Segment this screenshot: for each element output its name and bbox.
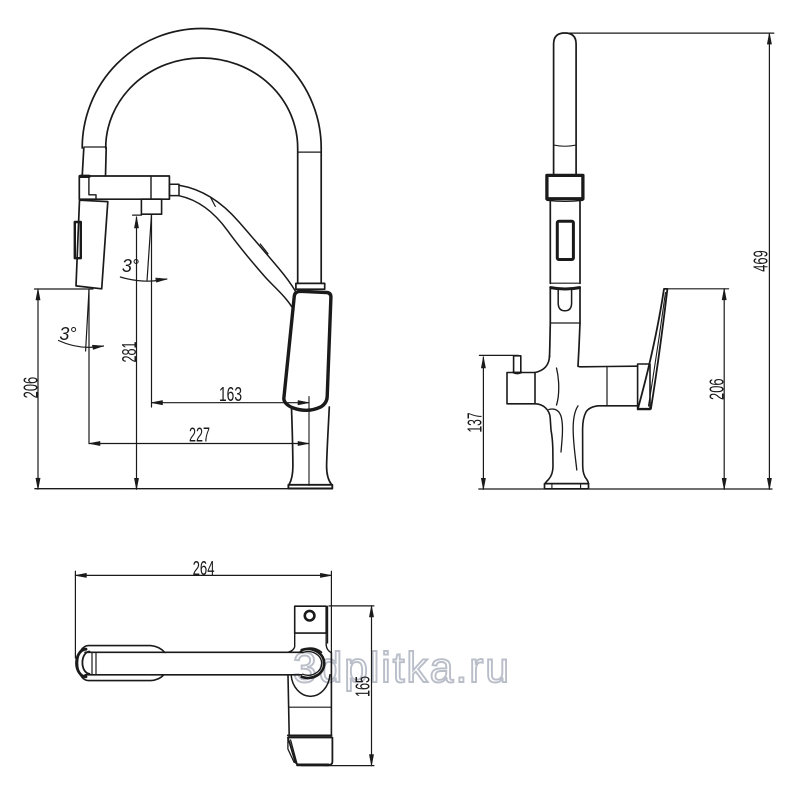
svg-text:227: 227 — [189, 423, 210, 446]
svg-text:163: 163 — [219, 383, 242, 406]
svg-text:3°: 3° — [59, 324, 76, 344]
svg-text:206: 206 — [706, 378, 729, 400]
svg-text:264: 264 — [193, 557, 215, 580]
svg-text:137: 137 — [464, 413, 487, 433]
svg-text:3dplitka.ru: 3dplitka.ru — [293, 645, 511, 692]
svg-text:206: 206 — [19, 377, 42, 399]
svg-text:3°: 3° — [122, 256, 139, 276]
svg-text:165: 165 — [351, 676, 374, 697]
svg-text:469: 469 — [750, 250, 773, 272]
svg-text:281: 281 — [118, 342, 141, 363]
